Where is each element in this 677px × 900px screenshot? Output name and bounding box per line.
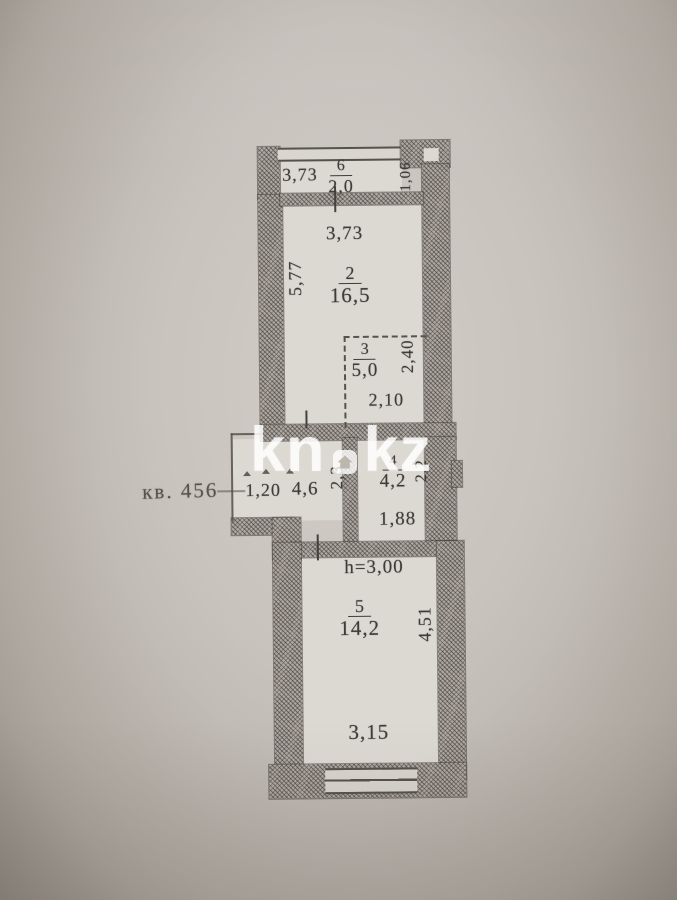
wall-room5-right	[437, 541, 466, 779]
room3-label: 3 5,0	[351, 342, 378, 382]
room5-height-dim: 4,51	[415, 606, 433, 642]
balcony-number: 6	[330, 158, 352, 176]
room5-number: 5	[348, 597, 371, 617]
watermark: kn kz	[250, 426, 432, 475]
balcony-width-dim: 3,73	[282, 165, 318, 183]
room3-height-dim: 2,40	[399, 339, 416, 373]
watermark-text-right: kz	[364, 426, 433, 475]
floor-plan-photo: 3,73 6 2,0 1,06 3,73 2 16,5 5,77 3 5,0 2…	[0, 0, 677, 900]
balcony-label: 6 2,0	[328, 158, 354, 196]
room5-label: 5 14,2	[339, 597, 380, 641]
room2-area: 16,5	[330, 284, 371, 308]
wall-notch	[424, 148, 439, 161]
wall-left-upper	[258, 195, 284, 429]
room5-width-dim: 3,15	[348, 722, 389, 743]
room3-area: 5,0	[351, 360, 378, 382]
room2-number: 2	[338, 264, 361, 284]
watermark-text-left: kn	[250, 426, 326, 475]
house-icon	[333, 450, 357, 474]
wall-room5-top	[291, 541, 457, 558]
apartment-label-leader-line	[217, 490, 245, 492]
room3-width-dim: 2,10	[368, 390, 404, 408]
room5-door-tick	[317, 534, 319, 560]
room3-number: 3	[354, 342, 376, 360]
bottom-window	[325, 767, 417, 794]
room5-ceiling-height: h=3,00	[344, 557, 404, 577]
room2-height-dim: 5,77	[286, 260, 304, 296]
room4-width-dim: 1,88	[379, 509, 416, 528]
room2-label: 2 16,5	[329, 264, 370, 308]
room2-width-dim: 3,73	[326, 224, 363, 243]
balcony-depth-dim: 1,06	[399, 161, 414, 191]
room5-area: 14,2	[339, 617, 380, 641]
balcony-area: 2,0	[328, 176, 354, 196]
apartment-number-label: кв. 456	[142, 478, 219, 505]
wall-room5-left	[273, 543, 303, 781]
wall-right-notch	[452, 461, 462, 487]
